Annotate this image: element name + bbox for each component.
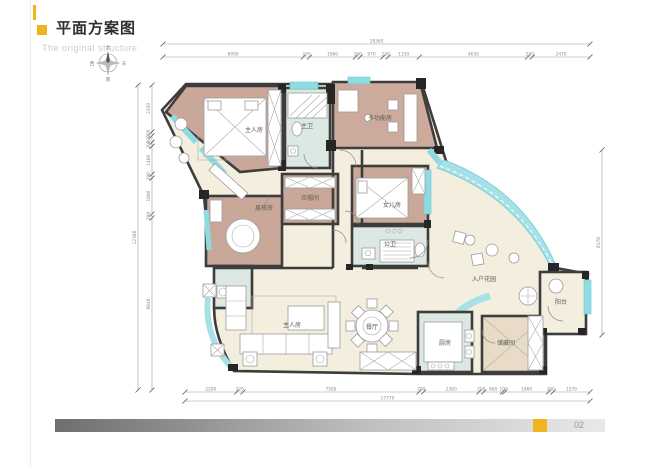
svg-text:8370: 8370 [596, 237, 602, 248]
svg-text:270: 270 [236, 387, 244, 393]
svg-text:8640: 8640 [146, 298, 152, 309]
svg-text:2350: 2350 [146, 103, 152, 114]
svg-text:270: 270 [302, 52, 310, 58]
dim-top-segments: 60002701960200970230133046302002470 [161, 52, 593, 60]
svg-text:6000: 6000 [228, 52, 239, 58]
svg-text:1860: 1860 [521, 387, 532, 393]
dim-left-total: 12380 [132, 83, 141, 393]
label-master-bedroom: 主人房 [245, 126, 263, 134]
dim-left-segments: 2350200330200140020018002008640 [146, 83, 155, 393]
svg-text:200: 200 [146, 172, 152, 180]
svg-text:12380: 12380 [132, 230, 138, 244]
svg-text:200: 200 [146, 212, 152, 220]
dim-right-total: 8370 [596, 148, 605, 338]
footer-gradient-bar [55, 419, 605, 432]
svg-text:2360: 2360 [446, 387, 457, 393]
dim-top-total: 18360 [161, 39, 593, 47]
compass-south-label: 南 [106, 76, 111, 83]
label-public-bath: 公卫 [384, 241, 396, 248]
compass-west-label: 西 [90, 61, 95, 67]
compass-east-label: 东 [122, 60, 127, 67]
svg-text:200: 200 [354, 52, 362, 58]
svg-text:200: 200 [547, 387, 555, 393]
label-cloakroom: 衣帽间 [301, 194, 319, 202]
dim-bottom-segments: 22002707500200236020080010018602001570 [183, 387, 593, 395]
svg-text:7500: 7500 [325, 387, 336, 393]
svg-text:1330: 1330 [398, 52, 409, 58]
label-multi-function: 多功能房 [368, 114, 392, 122]
svg-text:2470: 2470 [556, 52, 567, 58]
svg-text:200: 200 [526, 52, 534, 58]
label-living-room: 主人房 [283, 321, 301, 329]
svg-text:2200: 2200 [205, 387, 216, 393]
svg-text:17770: 17770 [381, 396, 395, 402]
label-boys-room: 男孩房 [255, 204, 273, 212]
svg-text:200: 200 [146, 140, 152, 148]
svg-text:4630: 4630 [468, 52, 479, 58]
svg-text:200: 200 [477, 387, 485, 393]
dim-bottom-total: 17770 [183, 396, 593, 404]
svg-text:970: 970 [367, 52, 375, 58]
label-entry-garden: 入户花园 [472, 275, 496, 283]
svg-text:200: 200 [417, 387, 425, 393]
compass-icon: 北 南 西 东 [90, 44, 127, 83]
svg-text:800: 800 [489, 387, 497, 393]
floor-plan-canvas: 北 南 西 东 [0, 0, 660, 467]
label-balcony: 阳台 [555, 298, 567, 306]
label-kitchen: 厨房 [439, 339, 451, 347]
footer-accent-square [533, 419, 547, 432]
svg-text:1960: 1960 [327, 52, 338, 58]
svg-text:100: 100 [500, 387, 508, 393]
svg-text:18360: 18360 [370, 39, 384, 45]
label-dining-room: 餐厅 [366, 323, 378, 331]
label-master-bath: 主卫 [301, 122, 313, 130]
label-storage: 储藏间 [497, 339, 515, 347]
svg-text:1800: 1800 [146, 190, 152, 201]
svg-text:1570: 1570 [566, 387, 577, 393]
svg-text:230: 230 [381, 52, 389, 58]
svg-text:1400: 1400 [146, 155, 152, 166]
page-number: 02 [574, 420, 584, 430]
label-daughters-room: 女儿房 [383, 201, 401, 209]
compass-north-label: 北 [106, 44, 111, 51]
